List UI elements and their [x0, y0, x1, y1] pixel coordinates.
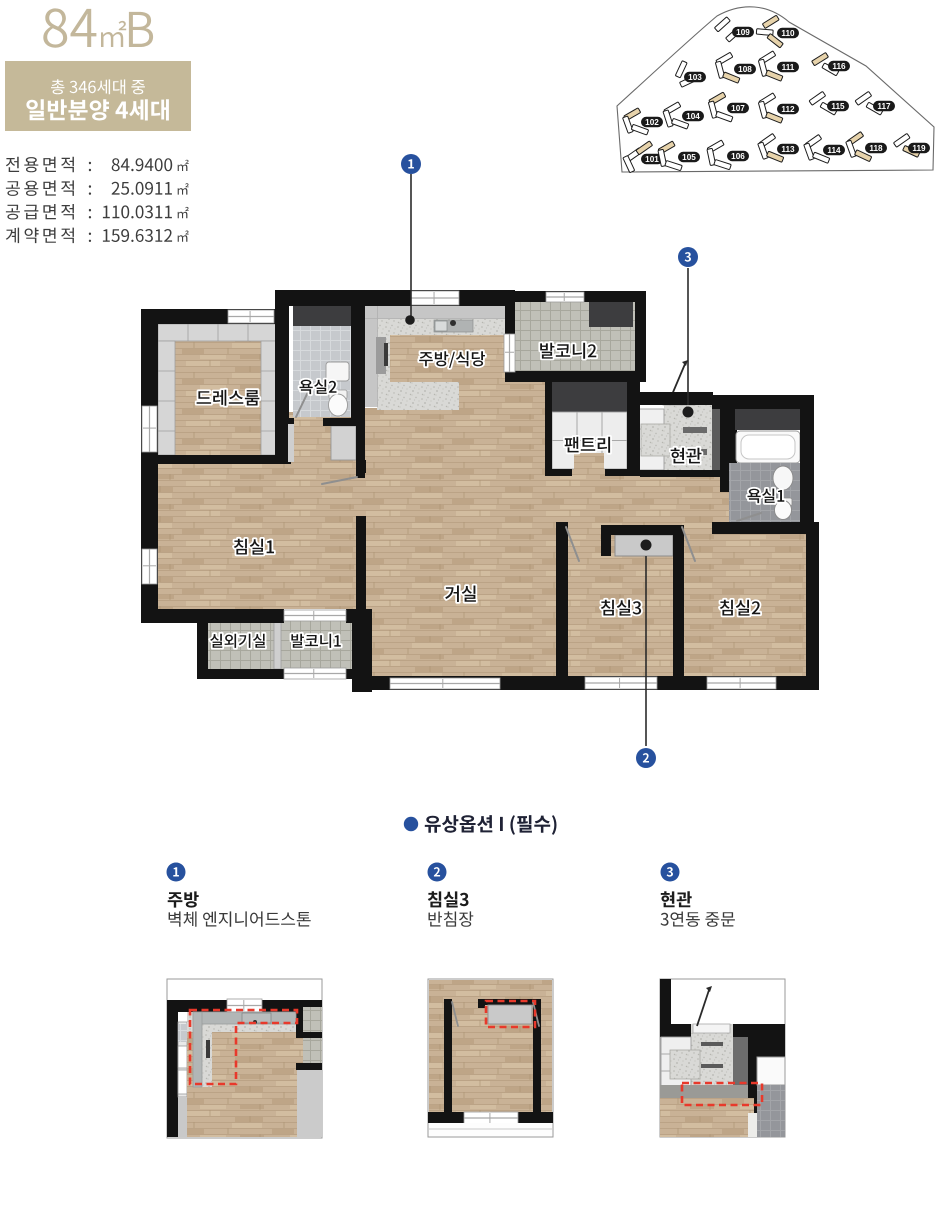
svg-text:113: 113 [781, 145, 795, 154]
svg-text:102: 102 [645, 118, 659, 127]
svg-text:106: 106 [731, 152, 745, 161]
svg-text:112: 112 [781, 105, 795, 114]
svg-text:110: 110 [781, 29, 795, 38]
svg-text:107: 107 [731, 104, 745, 113]
svg-text:101: 101 [645, 155, 659, 164]
svg-text:108: 108 [738, 65, 752, 74]
svg-text:114: 114 [827, 146, 841, 155]
svg-text:103: 103 [688, 73, 702, 82]
svg-text:105: 105 [682, 153, 696, 162]
svg-text:117: 117 [877, 102, 891, 111]
svg-text:115: 115 [831, 102, 845, 111]
svg-text:109: 109 [736, 28, 750, 37]
svg-text:111: 111 [782, 63, 795, 72]
svg-text:116: 116 [832, 62, 846, 71]
svg-text:118: 118 [869, 144, 883, 153]
svg-text:119: 119 [912, 144, 926, 153]
svg-text:104: 104 [686, 112, 700, 121]
